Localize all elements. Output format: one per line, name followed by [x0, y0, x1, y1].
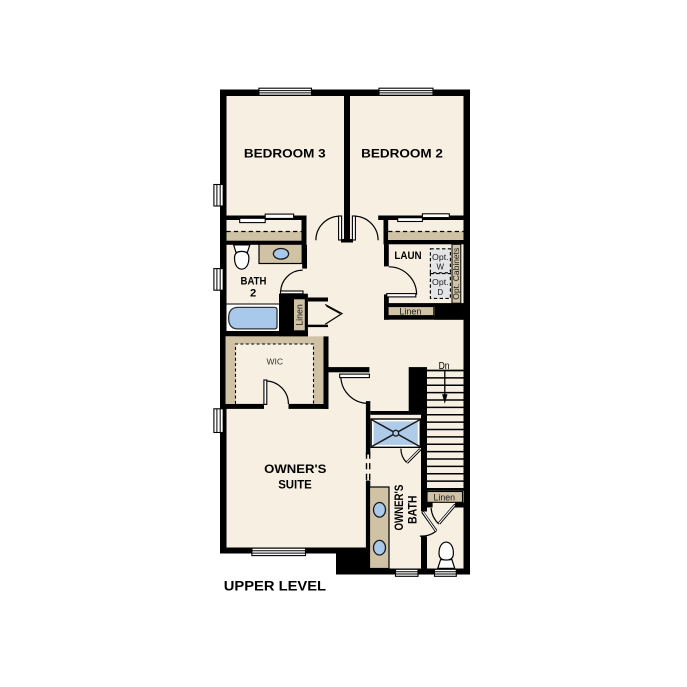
svg-text:Linen: Linen: [434, 492, 456, 502]
svg-text:BEDROOM 3: BEDROOM 3: [244, 146, 326, 160]
svg-text:2: 2: [250, 288, 256, 300]
svg-text:WIC: WIC: [267, 356, 284, 366]
svg-text:OWNER'S: OWNER'S: [264, 463, 326, 476]
svg-text:UPPER LEVEL: UPPER LEVEL: [224, 578, 327, 594]
svg-text:Opt. Cabinets: Opt. Cabinets: [452, 248, 461, 300]
svg-text:W: W: [437, 263, 445, 272]
svg-text:SUITE: SUITE: [278, 479, 312, 492]
svg-text:LAUN: LAUN: [394, 250, 421, 262]
svg-text:Linen: Linen: [399, 306, 421, 317]
svg-text:Opt.: Opt.: [432, 278, 449, 287]
svg-text:Dn: Dn: [439, 361, 450, 372]
svg-text:BEDROOM 2: BEDROOM 2: [361, 146, 443, 160]
svg-text:OWNER'S: OWNER'S: [392, 485, 406, 531]
svg-text:Opt.: Opt.: [432, 253, 449, 262]
svg-text:BATH: BATH: [406, 495, 420, 524]
svg-text:Linen: Linen: [295, 304, 305, 326]
svg-text:BATH: BATH: [241, 276, 267, 288]
svg-text:D: D: [437, 288, 443, 297]
